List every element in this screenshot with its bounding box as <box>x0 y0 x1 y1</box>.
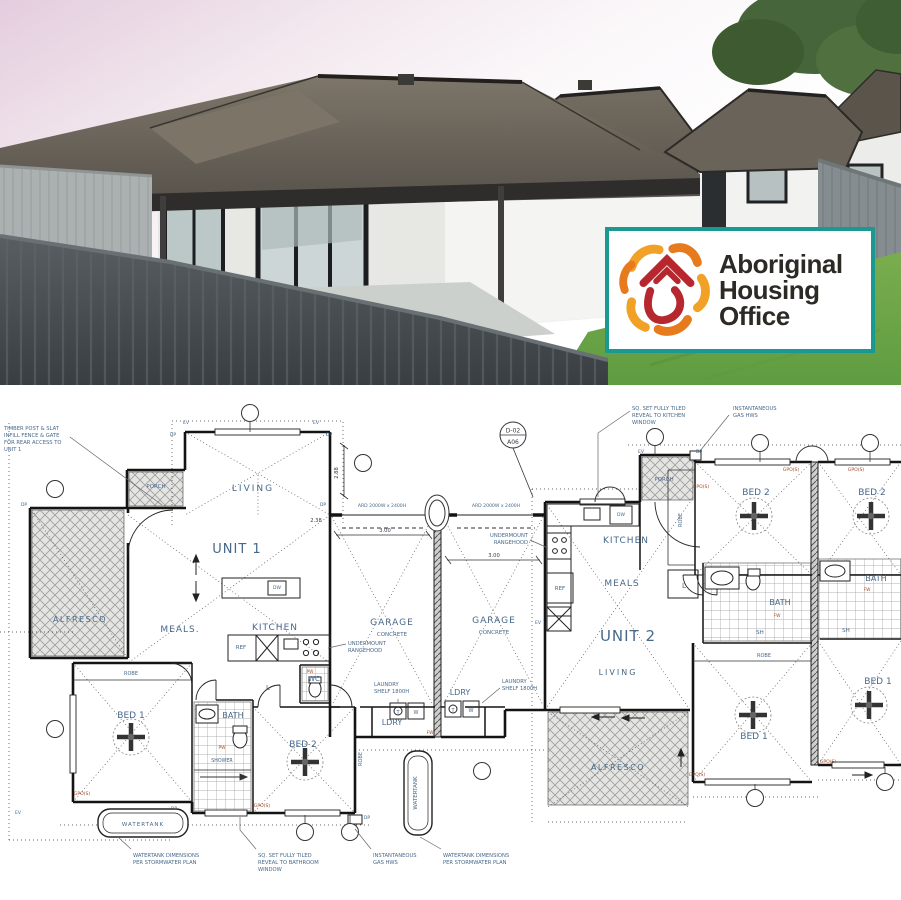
floor-plan-svg: D-02 A06 UNIT 1UNIT 2LIVINGLIVINGMEALS.M… <box>0 385 901 900</box>
plan-label-dp-6: DP <box>364 815 371 821</box>
plan-label-gpo-3: GPO(S) <box>693 484 710 490</box>
plan-label-gpo-5: GPO(S) <box>848 467 865 473</box>
plan-label-ev-3: EV <box>638 449 645 455</box>
plan-label-sh-3: SH <box>842 628 850 634</box>
plan-label-linen-2: L <box>682 582 686 590</box>
plan-label-garage-1: GARAGE <box>370 618 414 628</box>
plan-label-ref-1: REF <box>236 645 246 651</box>
plan-label-gpo-2: GPO(S) <box>254 803 271 809</box>
aboriginal-housing-office-logo: Aboriginal Housing Office <box>605 227 875 353</box>
plan-label-ev-1: EV <box>183 420 190 426</box>
plan-label-fw-3: FW <box>864 587 872 593</box>
plan-label-gpo-6: GPO(S) <box>689 772 706 778</box>
plan-label-bed2-u2: BED 2 <box>742 488 769 498</box>
plan-label-meals-1: MEALS. <box>160 625 199 635</box>
logo-line-3: Office <box>719 303 843 329</box>
plan-label-dim-2: 3.00 <box>488 553 500 559</box>
plan-label-dp-1: DP <box>170 432 177 438</box>
plan-label-dw-2: DW <box>617 512 625 518</box>
plan-label-pw-1: PW <box>219 745 227 751</box>
door-tag-top: D-02 <box>506 428 521 435</box>
plan-label-ev-4: EV <box>535 620 542 626</box>
plan-label-porch-1: PORCH <box>146 484 165 490</box>
logo-text: Aboriginal Housing Office <box>719 251 843 329</box>
plan-label-ev-2: EV <box>313 420 320 426</box>
plan-label-dim-1: 3.00 <box>379 528 391 534</box>
boomerang-icon <box>632 249 659 267</box>
front-window <box>258 198 366 294</box>
floor-plan-drawing: D-02 A06 UNIT 1UNIT 2LIVINGLIVINGMEALS.M… <box>0 385 901 900</box>
plan-note-rangehood-note-1: UNDERMOUNTRANGEHOOD <box>348 641 387 654</box>
plan-label-unit-2: UNIT 2 <box>600 627 656 645</box>
boomerang-icon <box>673 248 698 263</box>
plan-label-porch-2: PORCH <box>654 477 673 483</box>
plan-label-washer-1: W <box>414 710 419 716</box>
plan-label-ldry-2: LDRY <box>450 688 471 697</box>
plan-label-meals-2: MEALS <box>604 579 639 589</box>
plan-label-bed1-u2: BED 1 <box>740 732 767 742</box>
plan-label-kitchen-1: KITCHEN <box>252 623 298 633</box>
plan-label-sh-2: SH <box>756 630 764 636</box>
plan-label-concrete-2: CONCRETE <box>479 630 510 636</box>
plan-label-dw-1: DW <box>273 585 281 591</box>
door-tag-bottom: A06 <box>507 439 519 446</box>
plan-label-ard-1: ARD 2000W x 2400H <box>358 503 406 509</box>
plan-label-dp-5: DP <box>320 502 327 508</box>
plan-label-bed2-u1: BED 2 <box>289 740 316 750</box>
plan-label-alfresco-1: ALFRESCO <box>53 615 107 624</box>
plan-label-unit-1: UNIT 1 <box>212 542 261 557</box>
aho-logo-icon <box>615 236 715 344</box>
plan-label-robe-1: ROBE <box>124 671 138 677</box>
plan-label-shower-1: SHOWER <box>211 758 233 764</box>
door-opening-2 <box>702 168 726 234</box>
plan-label-kitchen-2: KITCHEN <box>603 536 649 546</box>
plan-label-linen-1: L <box>266 684 270 692</box>
logo-line-2: Housing <box>719 277 843 303</box>
plan-label-living-1: LIVING <box>232 484 274 494</box>
plan-label-gpo-4: GPO(S) <box>783 467 800 473</box>
plan-label-ref-2: REF <box>555 586 565 592</box>
plan-label-alfresco-2: ALFRESCO <box>591 763 645 772</box>
plan-note-watertank-note-1: WATERTANK DIMENSIONSPER STORMWATER PLAN <box>133 853 199 866</box>
roof-vent-2 <box>398 74 414 85</box>
plan-label-dp-7: DP <box>171 806 178 812</box>
boomerang-icon <box>697 278 705 307</box>
plan-label-dim-4: 2.38 <box>310 518 322 524</box>
boomerang-icon <box>631 302 646 328</box>
plan-label-fw-2: FW <box>774 613 782 619</box>
plan-label-bath-3: BATH <box>865 574 886 583</box>
roof-vent <box>578 80 592 90</box>
plan-label-garage-2: GARAGE <box>472 616 516 626</box>
plan-label-dp-4: DP <box>696 449 703 455</box>
plan-label-robe-4: ROBE <box>757 653 771 659</box>
plan-label-wc-1: WC <box>308 675 320 683</box>
plan-label-bed2-u3: BED 2 <box>858 488 885 498</box>
plan-label-bed1-u3: BED 1 <box>864 677 891 687</box>
logo-line-1: Aboriginal <box>719 251 843 277</box>
plan-label-ldry-1: LDRY <box>382 718 403 727</box>
plan-note-rangehood-note-2: UNDERMOUNTRANGEHOOD <box>490 533 529 546</box>
plan-label-living-2: LIVING <box>599 668 638 677</box>
plan-label-washer-2: W <box>469 708 474 714</box>
plan-label-concrete-1: CONCRETE <box>377 632 408 638</box>
plan-label-robe-3: ROBE <box>678 513 684 527</box>
plan-label-dim-3: 2.88 <box>334 467 340 479</box>
plan-label-ard-2: ARD 2000W x 2400H <box>472 503 520 509</box>
plan-label-robe-2: ROBE <box>358 752 364 766</box>
plan-label-bed1-u1: BED 1 <box>117 711 144 721</box>
plan-label-bath-1: BATH <box>222 711 243 720</box>
plan-label-dp-3: DP <box>21 502 28 508</box>
plan-label-bath-2: BATH <box>769 598 790 607</box>
plan-label-pw-2: PW <box>307 669 315 675</box>
plan-label-gpo-7: GPO(S) <box>820 759 837 765</box>
plan-note-watertank-note-2: WATERTANK DIMENSIONSPER STORMWATER PLAN <box>443 853 509 866</box>
alfresco-1-paving <box>32 510 124 656</box>
plan-label-ev-5: EV <box>15 810 22 816</box>
boomerang-icon <box>623 264 631 290</box>
plan-label-dp-2: DP <box>326 432 333 438</box>
house-base-icon <box>648 290 680 320</box>
plan-label-watertank-2: WATERTANK <box>413 776 419 810</box>
plan-label-fw-1: FW <box>427 730 435 736</box>
plan-label-watertank-1: WATERTANK <box>122 822 164 828</box>
plan-label-gpo-1: GPO(S) <box>74 791 91 797</box>
